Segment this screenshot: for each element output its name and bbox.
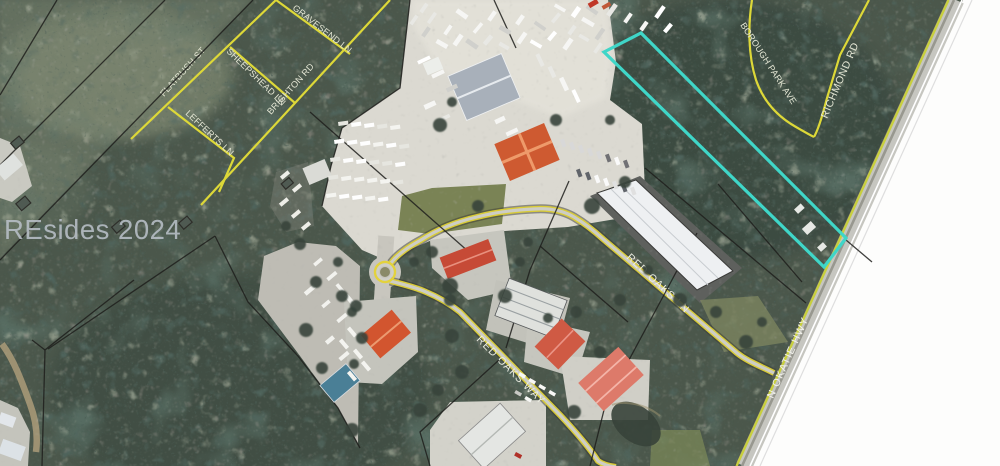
svg-text:REsides 2024: REsides 2024	[4, 214, 181, 245]
